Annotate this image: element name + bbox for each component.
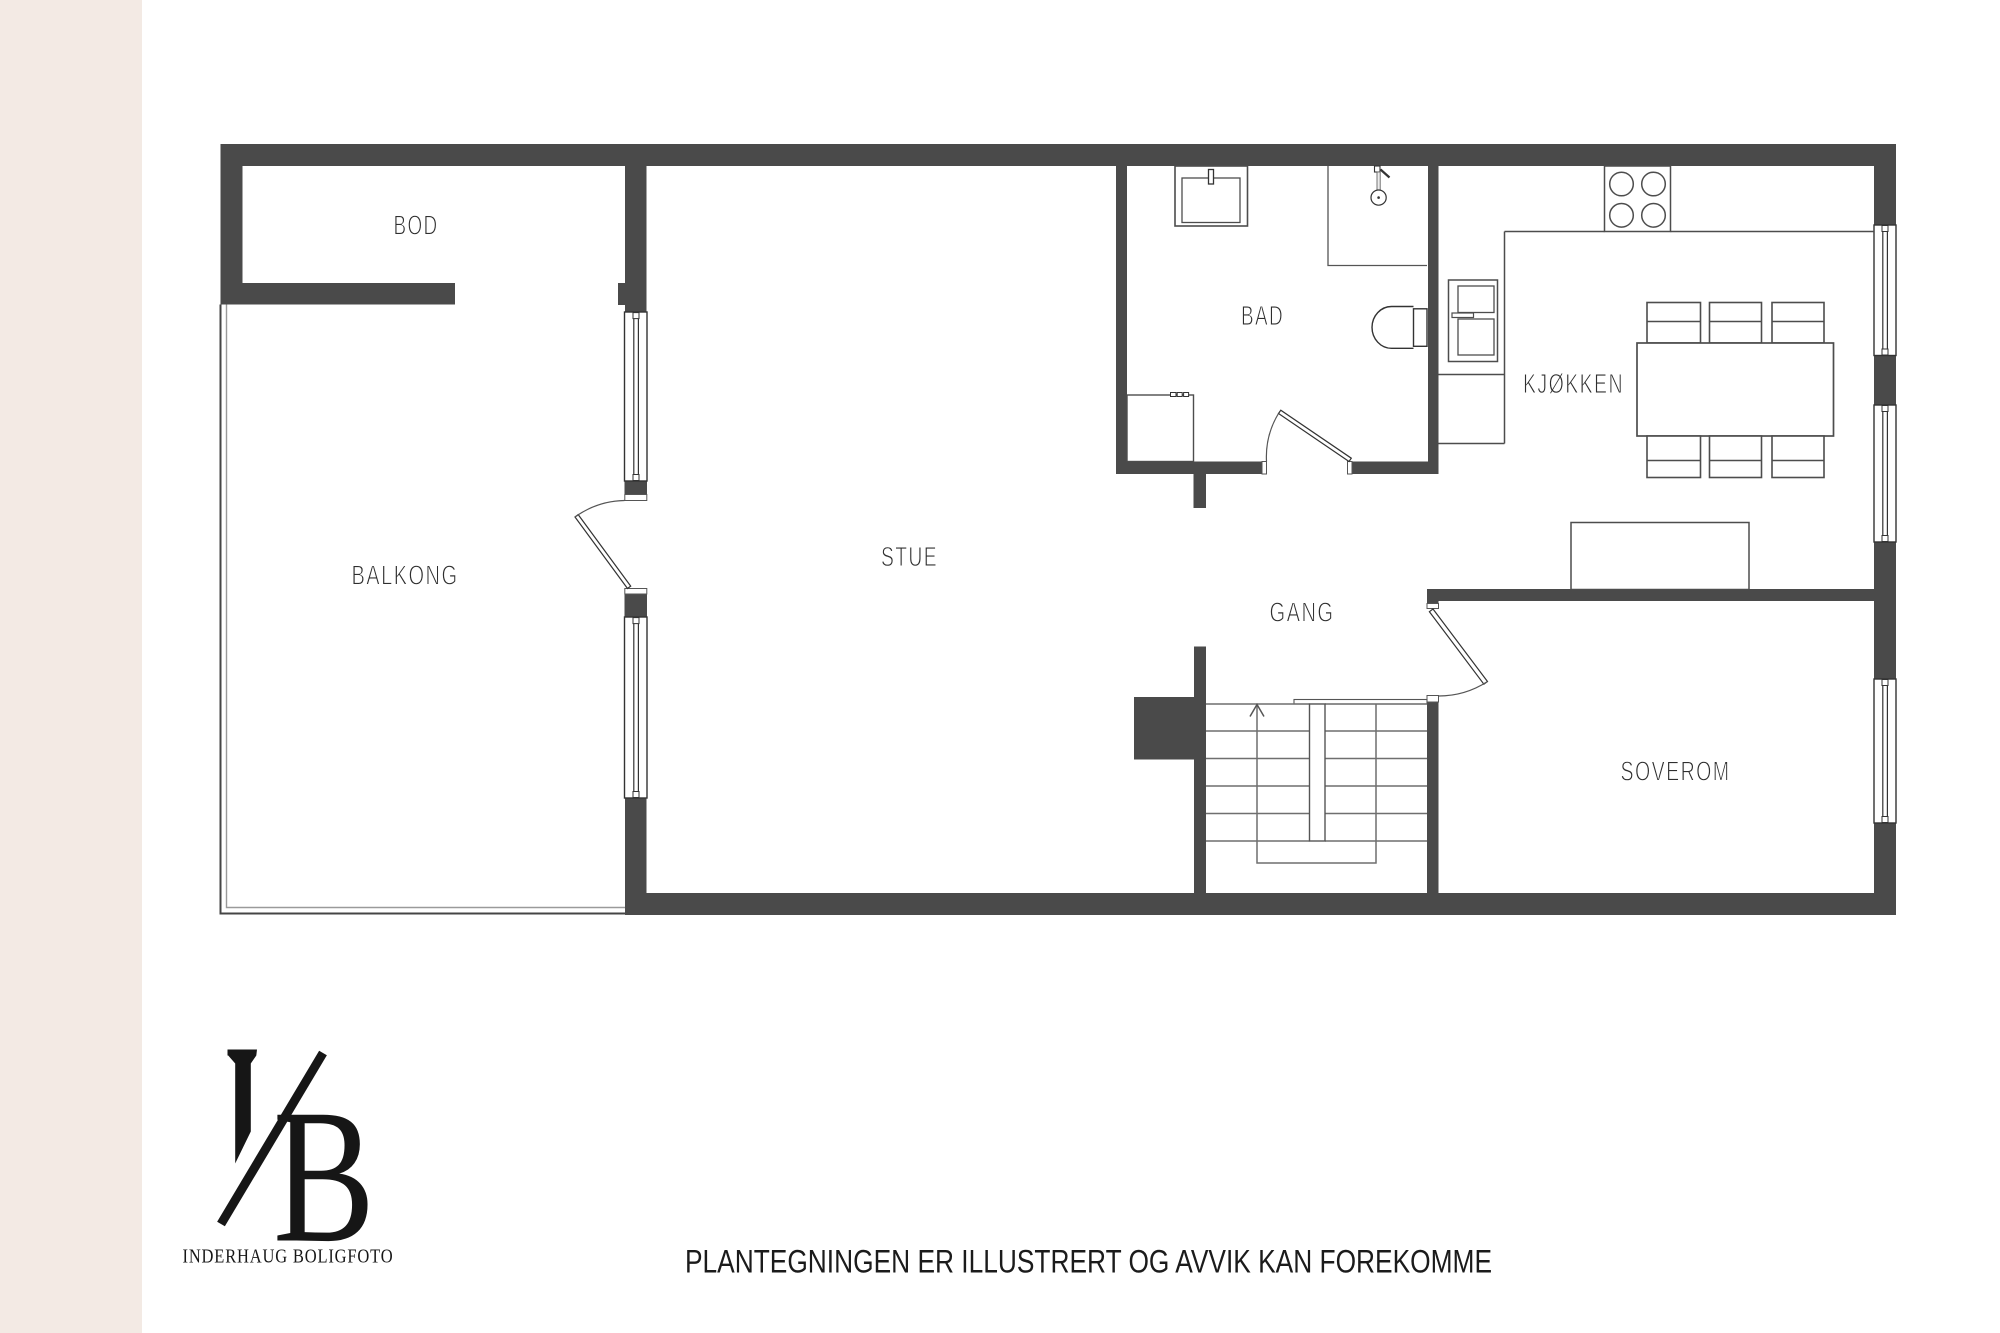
svg-text:PLANTEGNINGEN ER ILLUSTRERT OG: PLANTEGNINGEN ER ILLUSTRERT OG AVVIK KAN…	[685, 1244, 1492, 1280]
svg-text:GANG: GANG	[1270, 597, 1335, 628]
svg-text:BAD: BAD	[1241, 300, 1284, 331]
svg-text:SOVEROM: SOVEROM	[1621, 756, 1731, 787]
svg-text:BALKONG: BALKONG	[352, 560, 459, 591]
svg-text:KJØKKEN: KJØKKEN	[1523, 368, 1624, 399]
svg-text:BOD: BOD	[394, 210, 439, 241]
svg-text:INDERHAUG BOLIGFOTO: INDERHAUG BOLIGFOTO	[183, 1246, 394, 1268]
svg-text:STUE: STUE	[881, 541, 938, 572]
